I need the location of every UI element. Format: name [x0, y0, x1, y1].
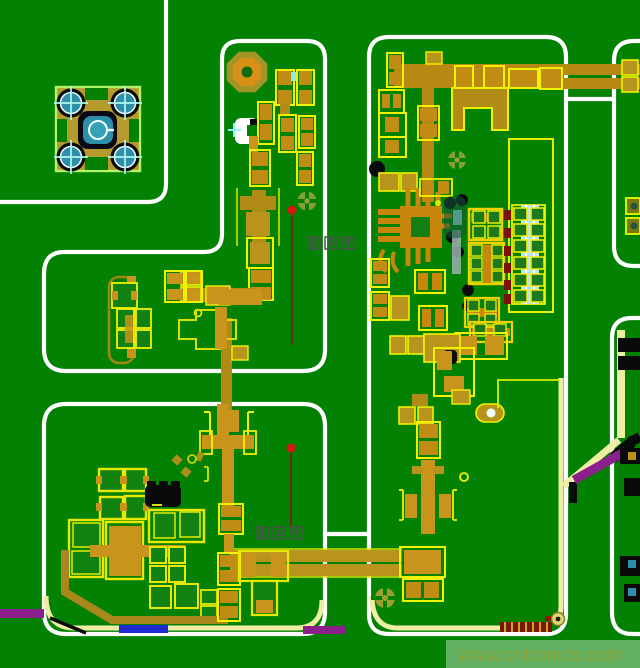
svg-text:www.cntronics.com: www.cntronics.com: [457, 645, 622, 666]
